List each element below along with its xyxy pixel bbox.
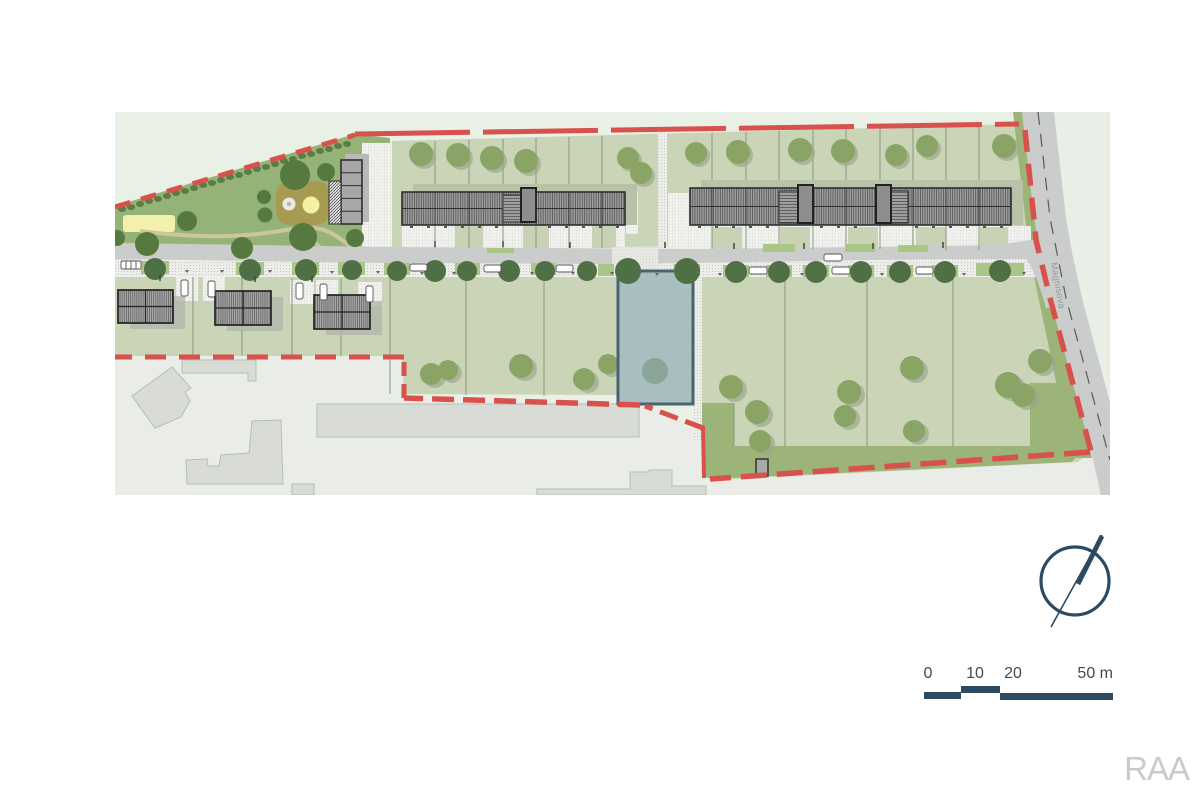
svg-text:10: 10 (966, 665, 984, 682)
svg-text:RAA: RAA (1124, 750, 1190, 787)
svg-text:20: 20 (1004, 665, 1022, 682)
svg-text:0: 0 (924, 665, 933, 682)
svg-text:50 m: 50 m (1077, 665, 1113, 682)
